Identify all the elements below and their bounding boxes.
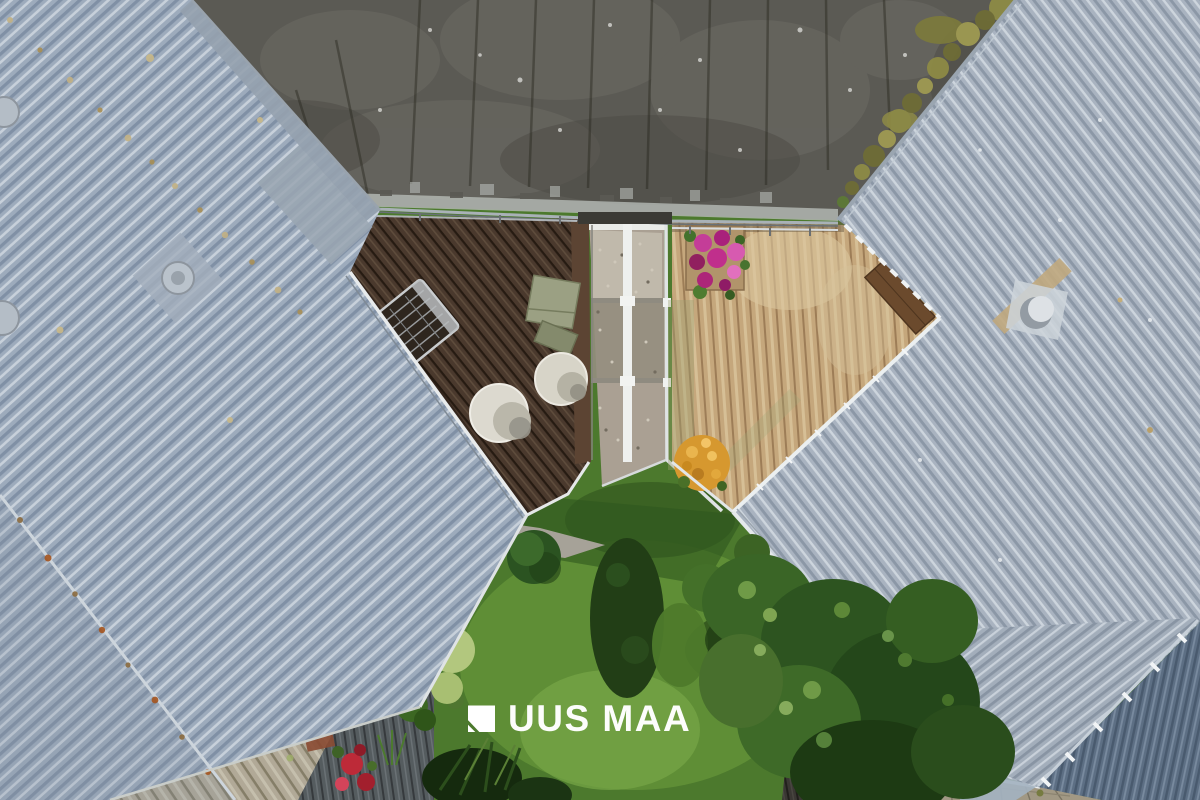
- dark-shrub: [590, 538, 664, 698]
- pink-flower-planter: [684, 226, 750, 300]
- white-pouf: [535, 353, 587, 405]
- aerial-photo-scene: [0, 0, 1200, 800]
- orange-flower-bush: [674, 435, 730, 491]
- aerial-photo: UUS MAA: [0, 0, 1200, 800]
